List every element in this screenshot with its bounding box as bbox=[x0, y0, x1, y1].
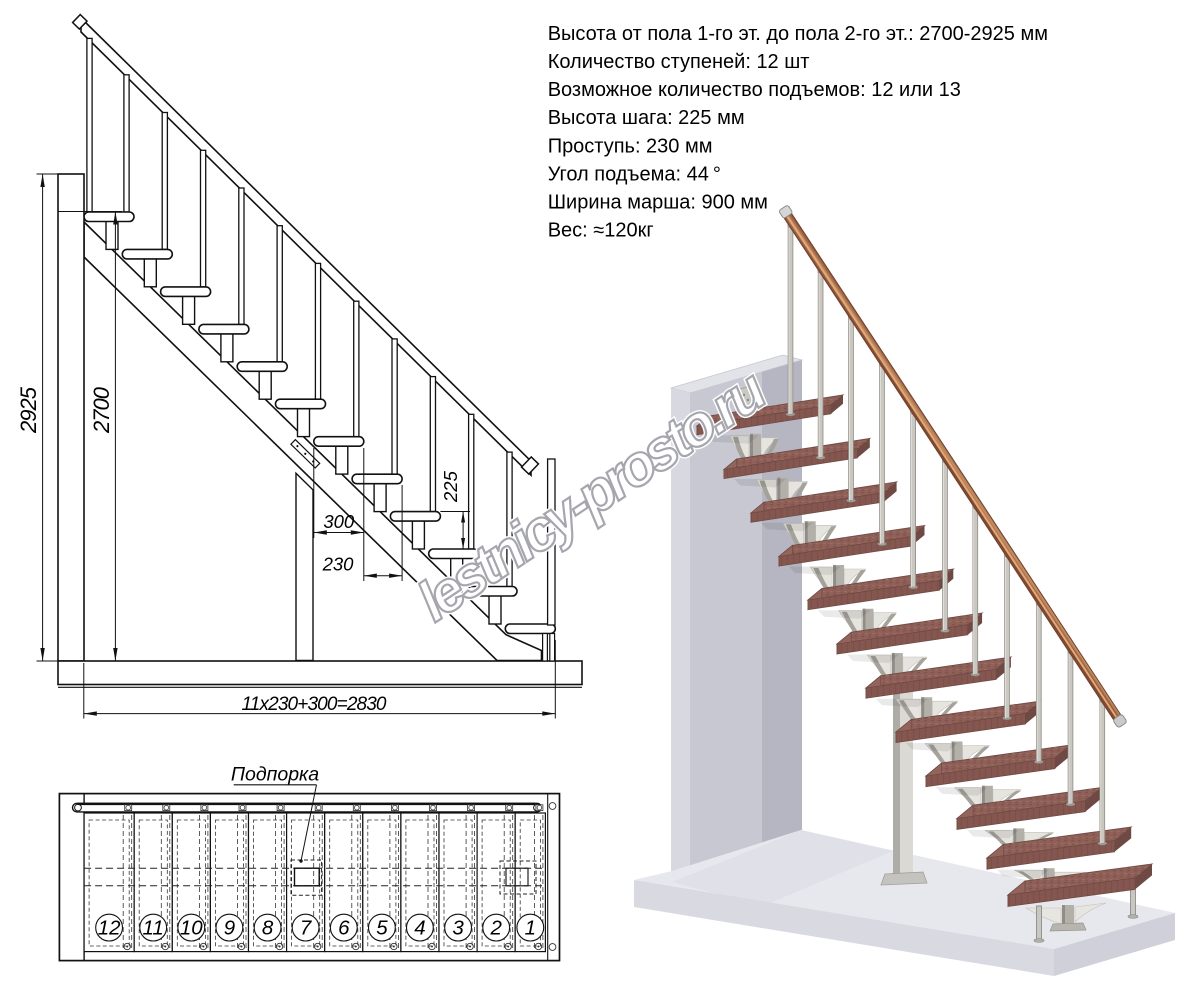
svg-text:Высота шага: 225 мм: Высота шага: 225 мм bbox=[548, 107, 745, 129]
svg-text:Вес: ≈120кг: Вес: ≈120кг bbox=[548, 220, 654, 242]
svg-text:Подпорка: Подпорка bbox=[231, 764, 319, 786]
svg-text:8: 8 bbox=[262, 917, 274, 940]
svg-text:11: 11 bbox=[143, 917, 164, 940]
svg-text:Количество ступеней: 12 шт: Количество ступеней: 12 шт bbox=[548, 51, 810, 73]
svg-text:230: 230 bbox=[322, 554, 355, 575]
svg-text:11x230+300=2830: 11x230+300=2830 bbox=[242, 694, 387, 715]
svg-text:1: 1 bbox=[525, 917, 536, 940]
svg-text:9: 9 bbox=[224, 917, 235, 940]
svg-text:Высота от пола 1-го эт. до пол: Высота от пола 1-го эт. до пола 2-го эт.… bbox=[548, 23, 1048, 45]
svg-text:2: 2 bbox=[489, 917, 502, 940]
svg-text:Ширина марша: 900 мм: Ширина марша: 900 мм bbox=[548, 192, 768, 214]
svg-text:10: 10 bbox=[180, 917, 203, 940]
svg-text:4: 4 bbox=[414, 917, 425, 940]
svg-text:3: 3 bbox=[452, 917, 464, 940]
svg-text:6: 6 bbox=[338, 917, 350, 940]
svg-text:7: 7 bbox=[300, 917, 313, 940]
svg-text:Угол подъема: 44 °: Угол подъема: 44 ° bbox=[548, 163, 721, 185]
svg-text:Проступь: 230 мм: Проступь: 230 мм bbox=[548, 135, 713, 157]
svg-text:2925: 2925 bbox=[16, 386, 41, 434]
svg-text:5: 5 bbox=[376, 917, 388, 940]
svg-text:Возможное количество подъемов:: Возможное количество подъемов: 12 или 13 bbox=[548, 79, 961, 101]
svg-text:2700: 2700 bbox=[89, 386, 114, 434]
svg-text:12: 12 bbox=[98, 917, 121, 940]
svg-text:225: 225 bbox=[440, 470, 461, 503]
svg-text:300: 300 bbox=[323, 511, 355, 532]
